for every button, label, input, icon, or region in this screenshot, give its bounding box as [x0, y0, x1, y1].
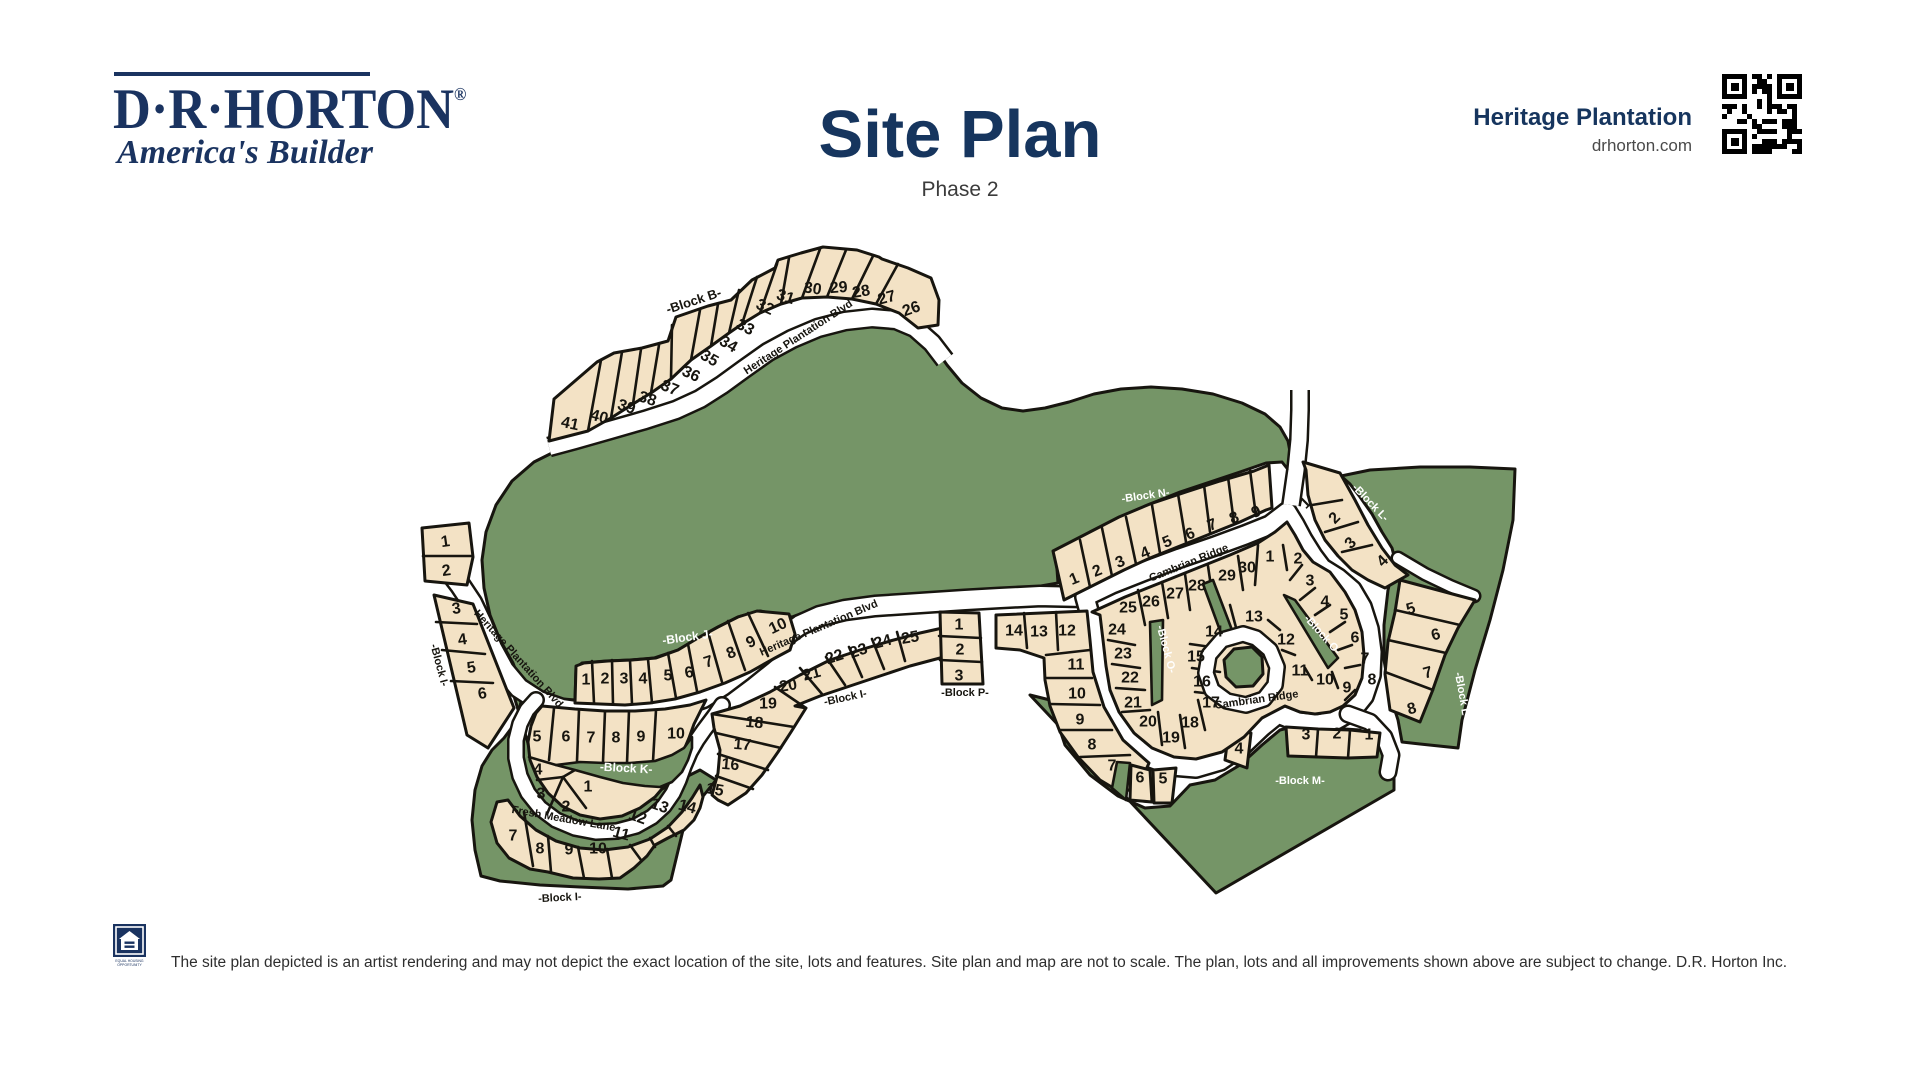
- svg-text:9: 9: [1343, 680, 1352, 697]
- svg-text:21: 21: [1124, 695, 1142, 712]
- svg-text:14: 14: [1005, 623, 1023, 640]
- svg-text:30: 30: [1238, 560, 1256, 577]
- svg-text:28: 28: [851, 282, 872, 302]
- svg-text:9: 9: [1076, 712, 1085, 729]
- svg-text:2: 2: [1294, 551, 1303, 568]
- svg-text:1: 1: [584, 779, 593, 796]
- svg-text:4: 4: [534, 762, 543, 779]
- svg-text:25: 25: [1119, 600, 1137, 617]
- svg-text:2: 2: [956, 642, 965, 659]
- svg-text:-Block I-: -Block I-: [538, 891, 582, 905]
- svg-text:3: 3: [620, 671, 629, 688]
- svg-text:29: 29: [829, 279, 848, 297]
- svg-text:22: 22: [1121, 670, 1139, 687]
- svg-text:2: 2: [1333, 726, 1342, 743]
- svg-text:4: 4: [639, 671, 648, 688]
- svg-text:13: 13: [1030, 624, 1048, 641]
- svg-text:23: 23: [1114, 646, 1132, 663]
- svg-text:10: 10: [667, 726, 685, 743]
- svg-text:2: 2: [601, 671, 610, 688]
- svg-text:3: 3: [955, 668, 964, 685]
- svg-text:20: 20: [778, 676, 799, 696]
- svg-text:4: 4: [1235, 741, 1244, 758]
- svg-text:5: 5: [1159, 771, 1168, 788]
- svg-text:6: 6: [1136, 770, 1145, 787]
- svg-text:30: 30: [803, 279, 823, 298]
- svg-text:16: 16: [721, 756, 740, 774]
- svg-text:4: 4: [1321, 594, 1330, 611]
- svg-text:8: 8: [1088, 737, 1097, 754]
- svg-text:19: 19: [759, 696, 777, 713]
- svg-text:3: 3: [537, 786, 546, 803]
- svg-text:20: 20: [1139, 714, 1157, 731]
- svg-text:12: 12: [1058, 623, 1076, 640]
- svg-text:10: 10: [589, 841, 607, 858]
- svg-text:6: 6: [562, 729, 571, 746]
- svg-text:-Block P-: -Block P-: [941, 687, 989, 699]
- svg-text:25: 25: [900, 628, 921, 648]
- svg-text:1: 1: [582, 672, 591, 689]
- svg-text:9: 9: [637, 729, 646, 746]
- svg-text:1: 1: [1365, 727, 1374, 744]
- svg-text:15: 15: [1187, 649, 1205, 666]
- svg-text:27: 27: [1166, 586, 1184, 603]
- svg-text:6: 6: [1351, 630, 1360, 647]
- svg-text:7: 7: [1361, 651, 1370, 668]
- svg-text:8: 8: [536, 841, 545, 858]
- svg-text:11: 11: [1292, 663, 1309, 680]
- svg-text:5: 5: [533, 729, 542, 746]
- svg-text:11: 11: [1068, 657, 1085, 674]
- svg-text:17: 17: [733, 736, 752, 754]
- svg-text:41: 41: [559, 414, 580, 434]
- svg-text:7: 7: [587, 730, 596, 747]
- svg-text:14: 14: [1205, 624, 1223, 641]
- svg-text:9: 9: [565, 842, 574, 859]
- svg-text:8: 8: [1368, 672, 1377, 689]
- svg-text:-Block M-: -Block M-: [1275, 775, 1325, 787]
- svg-text:24: 24: [1108, 622, 1126, 639]
- svg-text:19: 19: [1162, 730, 1180, 747]
- svg-text:29: 29: [1218, 568, 1236, 585]
- svg-text:28: 28: [1188, 578, 1206, 595]
- svg-text:18: 18: [1181, 715, 1199, 732]
- svg-text:15: 15: [705, 780, 726, 800]
- svg-text:18: 18: [745, 714, 764, 732]
- svg-text:7: 7: [1108, 758, 1117, 775]
- svg-text:3: 3: [1306, 573, 1315, 590]
- svg-text:13: 13: [1245, 609, 1263, 626]
- svg-text:7: 7: [509, 828, 518, 845]
- svg-text:26: 26: [1142, 594, 1160, 611]
- svg-text:-Block K-: -Block K-: [600, 760, 653, 777]
- svg-text:10: 10: [1068, 686, 1086, 703]
- svg-text:1: 1: [955, 617, 964, 634]
- svg-text:5: 5: [1340, 607, 1349, 624]
- svg-text:8: 8: [612, 730, 621, 747]
- svg-text:16: 16: [1193, 674, 1211, 691]
- svg-text:10: 10: [1316, 672, 1334, 689]
- svg-text:5: 5: [664, 668, 673, 685]
- svg-text:12: 12: [1277, 632, 1295, 649]
- svg-text:1: 1: [1266, 549, 1275, 566]
- svg-text:OPPORTUNITY: OPPORTUNITY: [117, 963, 142, 967]
- svg-text:3: 3: [1302, 727, 1311, 744]
